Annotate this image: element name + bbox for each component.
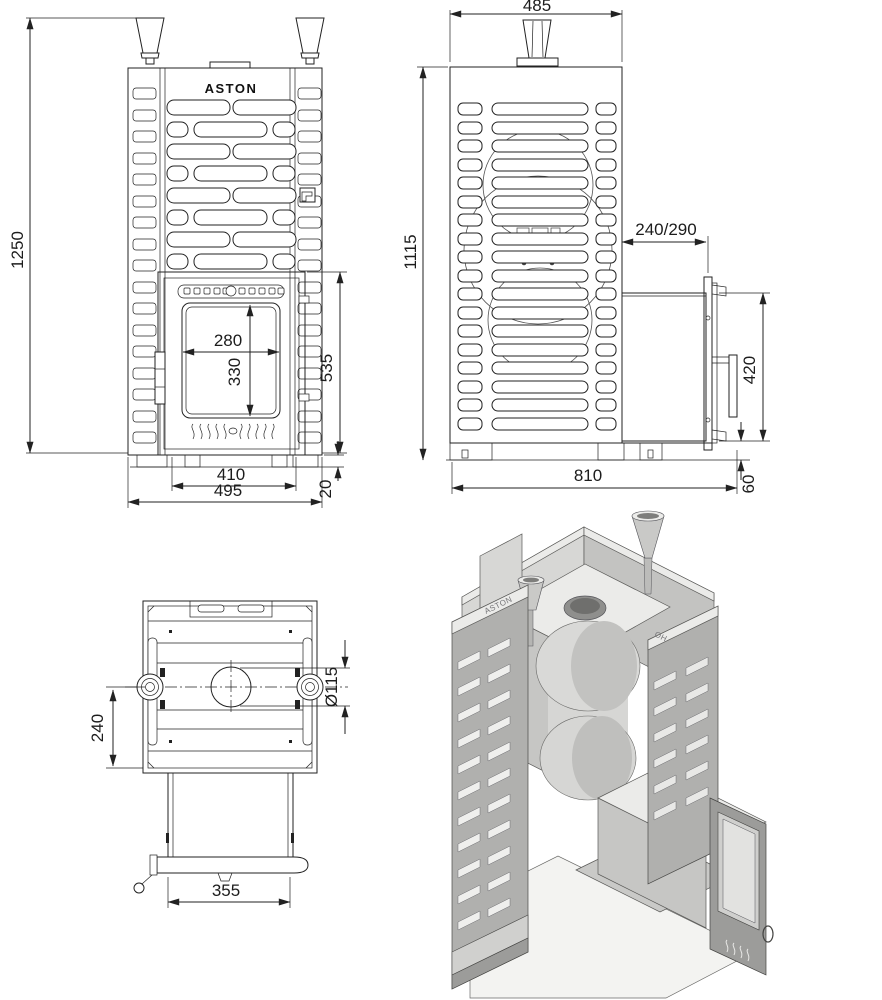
dim-overall-depth: 810 <box>574 466 602 485</box>
dim-front-height: 1250 <box>8 231 27 269</box>
top-tunnel <box>134 773 308 893</box>
dim-depth: 485 <box>523 0 551 15</box>
top-door-bar <box>157 857 308 873</box>
dim-door-height: 535 <box>317 354 336 382</box>
door-latch-tab-top <box>299 296 309 303</box>
top-view: 240 Ø115 355 <box>88 601 350 908</box>
side-view: 485 1115 240/290 420 810 60 <box>401 0 770 494</box>
dim-bottom-clearance: 60 <box>739 475 758 494</box>
tunnel-door-handle[interactable] <box>712 355 737 417</box>
dim-tunnel-height: 420 <box>740 356 759 384</box>
side-tunnel <box>622 277 737 450</box>
dim-glass-height: 330 <box>225 358 244 386</box>
door-frame-3d[interactable] <box>710 798 773 975</box>
front-chimney-collar <box>210 62 250 68</box>
front-funnel-right-icon <box>296 18 324 64</box>
tunnel-flange <box>704 277 712 450</box>
dim-plinth-height: 20 <box>316 480 335 499</box>
dim-height: 1115 <box>401 234 420 269</box>
top-fastener-dots <box>169 630 292 743</box>
dim-chimney-diameter: Ø115 <box>322 667 341 707</box>
door-vent-holes <box>184 286 284 296</box>
cage-column-right: OH <box>648 606 718 884</box>
isometric-cutaway-view: OH <box>452 511 773 998</box>
dim-tunnel-width: 355 <box>212 881 240 900</box>
side-funnel-icon <box>517 20 558 66</box>
cage-column-left: ASTON <box>452 585 528 989</box>
front-funnel-left-icon <box>136 18 164 64</box>
technical-drawing-sheet: ASTON <box>0 0 882 1000</box>
top-panel-lines <box>148 621 312 751</box>
door-latch-tab-bottom <box>299 394 309 401</box>
dim-valve-offset: 240 <box>88 714 107 742</box>
internal-tank <box>536 621 640 800</box>
brand-logo: ASTON <box>205 81 258 96</box>
door-hinge <box>155 352 165 404</box>
top-door-handle[interactable] <box>134 883 144 893</box>
dim-tunnel-projection: 240/290 <box>635 220 696 239</box>
door-flame-ornament <box>192 424 274 439</box>
side-slot-grid <box>458 103 616 430</box>
door-latch-striker <box>300 188 315 202</box>
dim-overall-width: 495 <box>214 481 242 500</box>
drawing-canvas: ASTON <box>0 0 882 1000</box>
front-slot-grid <box>167 100 296 269</box>
front-view: ASTON <box>8 18 347 508</box>
dim-glass-width: 280 <box>214 331 242 350</box>
